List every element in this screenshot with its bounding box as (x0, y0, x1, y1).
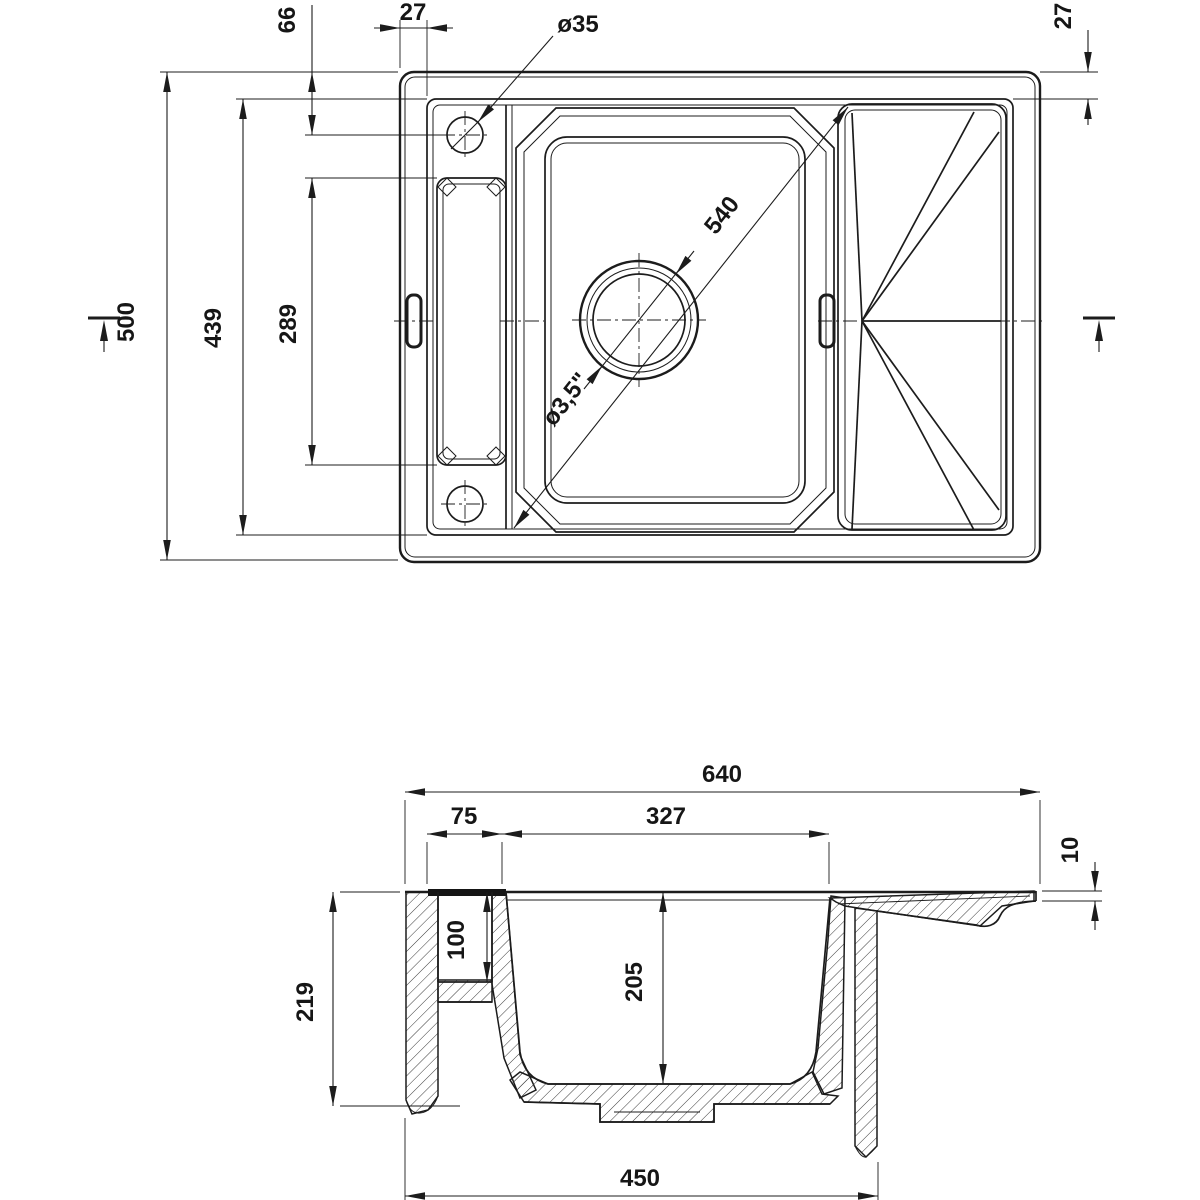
pocket-opening-edge (428, 889, 506, 896)
dim-overall-height: 500 (113, 302, 140, 342)
dim-hole-diameter: ø35 (557, 11, 598, 38)
tap-ledge-recess (437, 178, 506, 465)
section-cut-material (406, 891, 1034, 1157)
dim-recess-height: 289 (275, 304, 302, 344)
dim-bottom-width: 450 (620, 1165, 660, 1192)
drainer-grooves (852, 112, 1001, 530)
dim-hole-offset-top: 66 (274, 7, 301, 34)
dim-edge-thickness: 10 (1057, 837, 1084, 864)
dim-overall-width: 640 (702, 761, 742, 788)
technical-drawing-page: 500 439 289 66 27 (0, 0, 1200, 1200)
tap-hole-bottom (441, 480, 489, 528)
sink-drawing-svg: 500 439 289 66 27 (0, 0, 1200, 1200)
dim-bowl-diagonal: 540 (699, 191, 745, 239)
drainer-board (838, 104, 1006, 530)
right-wall-section (855, 908, 877, 1157)
left-wall-section (406, 892, 438, 1114)
section-marker-right (1083, 318, 1115, 352)
dim-pocket-depth: 100 (443, 920, 470, 960)
sink-outer-edge (400, 72, 1040, 562)
dim-inner-rim-height: 439 (200, 308, 227, 348)
section-view: 640 75 327 10 219 100 (292, 761, 1102, 1200)
dim-pocket-width: 75 (451, 803, 478, 830)
bowl-right-wall-section (813, 896, 845, 1094)
dim-overall-depth: 219 (292, 982, 319, 1022)
pocket-divider-section (492, 892, 536, 1098)
dim-rim-left-width: 27 (400, 0, 427, 26)
dim-bowl-depth: 205 (621, 962, 648, 1002)
sink-inner-rim (427, 99, 1013, 535)
dim-bowl-top-width: 327 (646, 803, 686, 830)
plan-view: 500 439 289 66 27 (88, 0, 1115, 562)
bowl-floor-section (510, 1072, 838, 1122)
dim-rim-top-right-width: 27 (1050, 3, 1077, 30)
pocket-bottom-section (438, 980, 492, 1002)
